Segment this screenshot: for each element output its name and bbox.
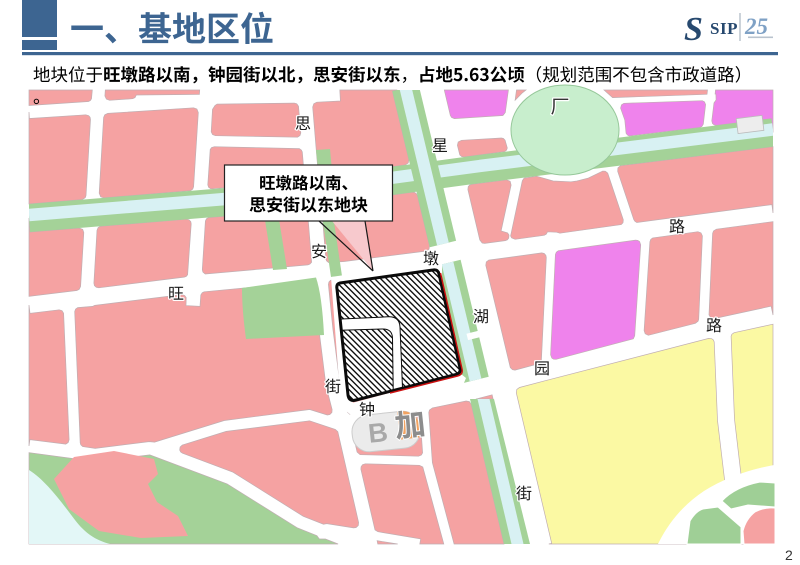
- svg-text:SIP: SIP: [710, 19, 738, 38]
- svg-text:S: S: [684, 11, 703, 48]
- svg-text:2: 2: [785, 547, 793, 563]
- svg-text:B: B: [367, 417, 390, 449]
- svg-text:25: 25: [744, 14, 768, 39]
